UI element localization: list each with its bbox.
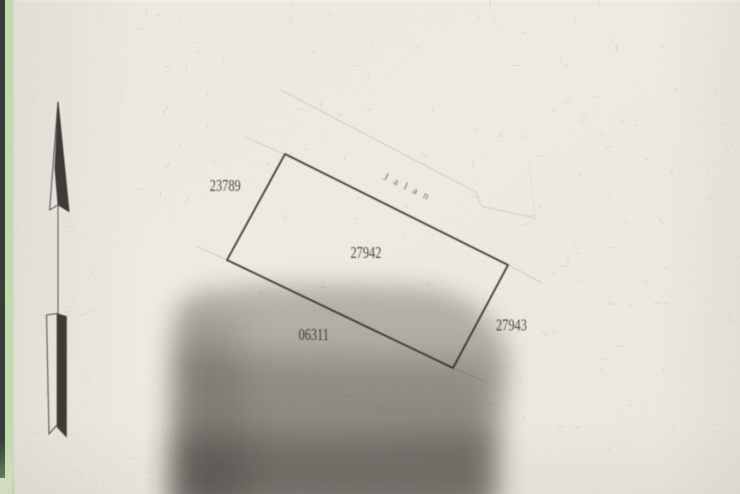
svg-text:27943: 27943 [496,317,527,335]
svg-text:23789: 23789 [210,177,241,195]
svg-text:27942: 27942 [351,244,382,262]
